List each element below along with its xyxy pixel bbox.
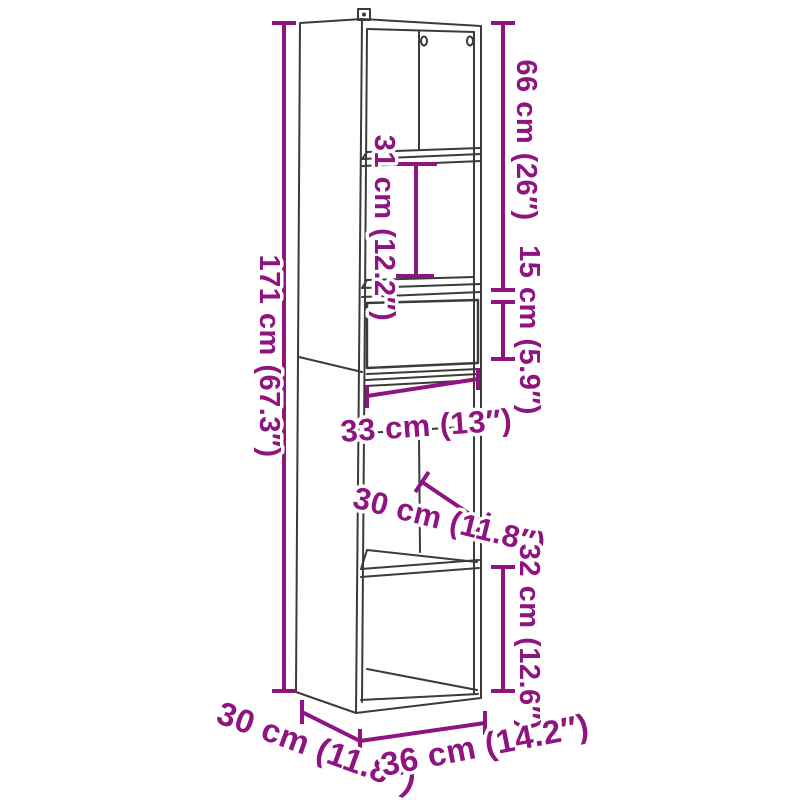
drawer-bottom-gap (367, 369, 478, 374)
shelf-pin-hole (467, 37, 473, 46)
diagram-canvas: 171 cm (67.3″) 66 cm (26″) 31 cm (12.2″)… (0, 0, 800, 800)
dimension-lines (272, 23, 515, 753)
label-bottom-compartment-height: 32 cm (12.6″) (513, 544, 545, 730)
front-left-edge (356, 19, 362, 713)
top-panel-edge (367, 29, 474, 32)
cabinet-drawing (296, 9, 481, 713)
dim-line-bottom-compartment (491, 567, 515, 691)
wall-bracket-screw (362, 13, 366, 17)
label-top-section-height: 66 cm (26″) (510, 59, 542, 220)
shelf-pin-hole (421, 37, 427, 46)
product-dimension-diagram: 171 cm (67.3″) 66 cm (26″) 31 cm (12.2″)… (0, 0, 800, 800)
section-joint-side (299, 357, 362, 372)
label-shelf-spacing: 31 cm (12.2″) (368, 135, 400, 321)
dimension-labels: 171 cm (67.3″) 66 cm (26″) 31 cm (12.2″)… (212, 59, 592, 800)
bottom-panel (361, 669, 478, 700)
label-drawer-height: 15 cm (5.9″) (513, 245, 545, 415)
label-total-height: 171 cm (67.3″) (253, 254, 285, 457)
dim-line-drawer (491, 302, 515, 359)
label-inner-width: 33 cm (13″) (339, 402, 513, 449)
shelf-bottom (361, 550, 479, 577)
